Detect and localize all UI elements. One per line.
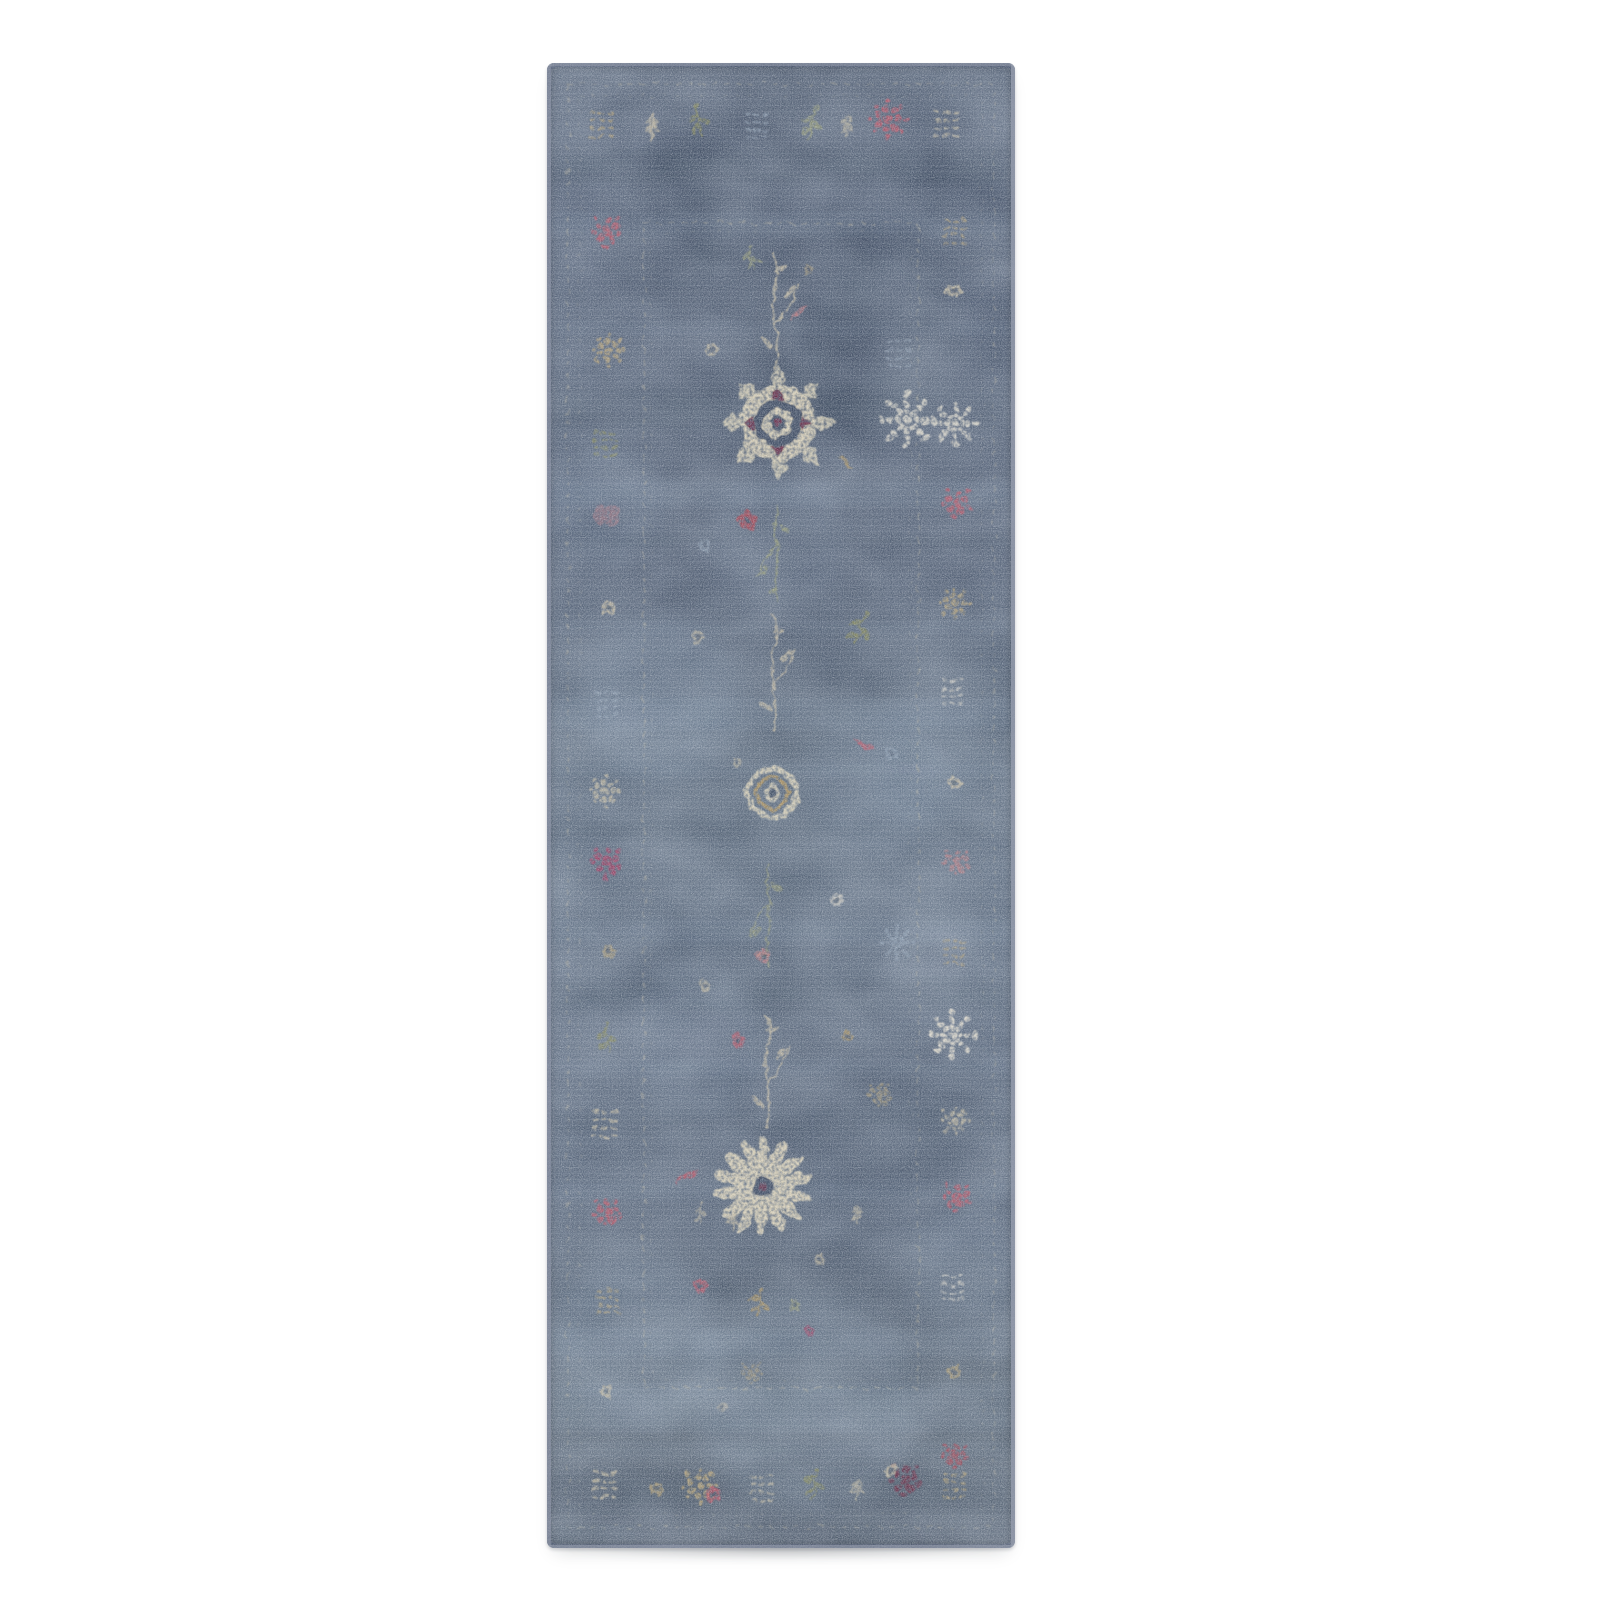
rug-grain-dark: [547, 63, 1015, 1548]
rug-image: [547, 63, 1015, 1548]
photo-background: [0, 0, 1600, 1600]
page: { "scene": { "type": "product-photo", "s…: [0, 0, 1600, 1600]
rug-vector: [547, 63, 1015, 1548]
